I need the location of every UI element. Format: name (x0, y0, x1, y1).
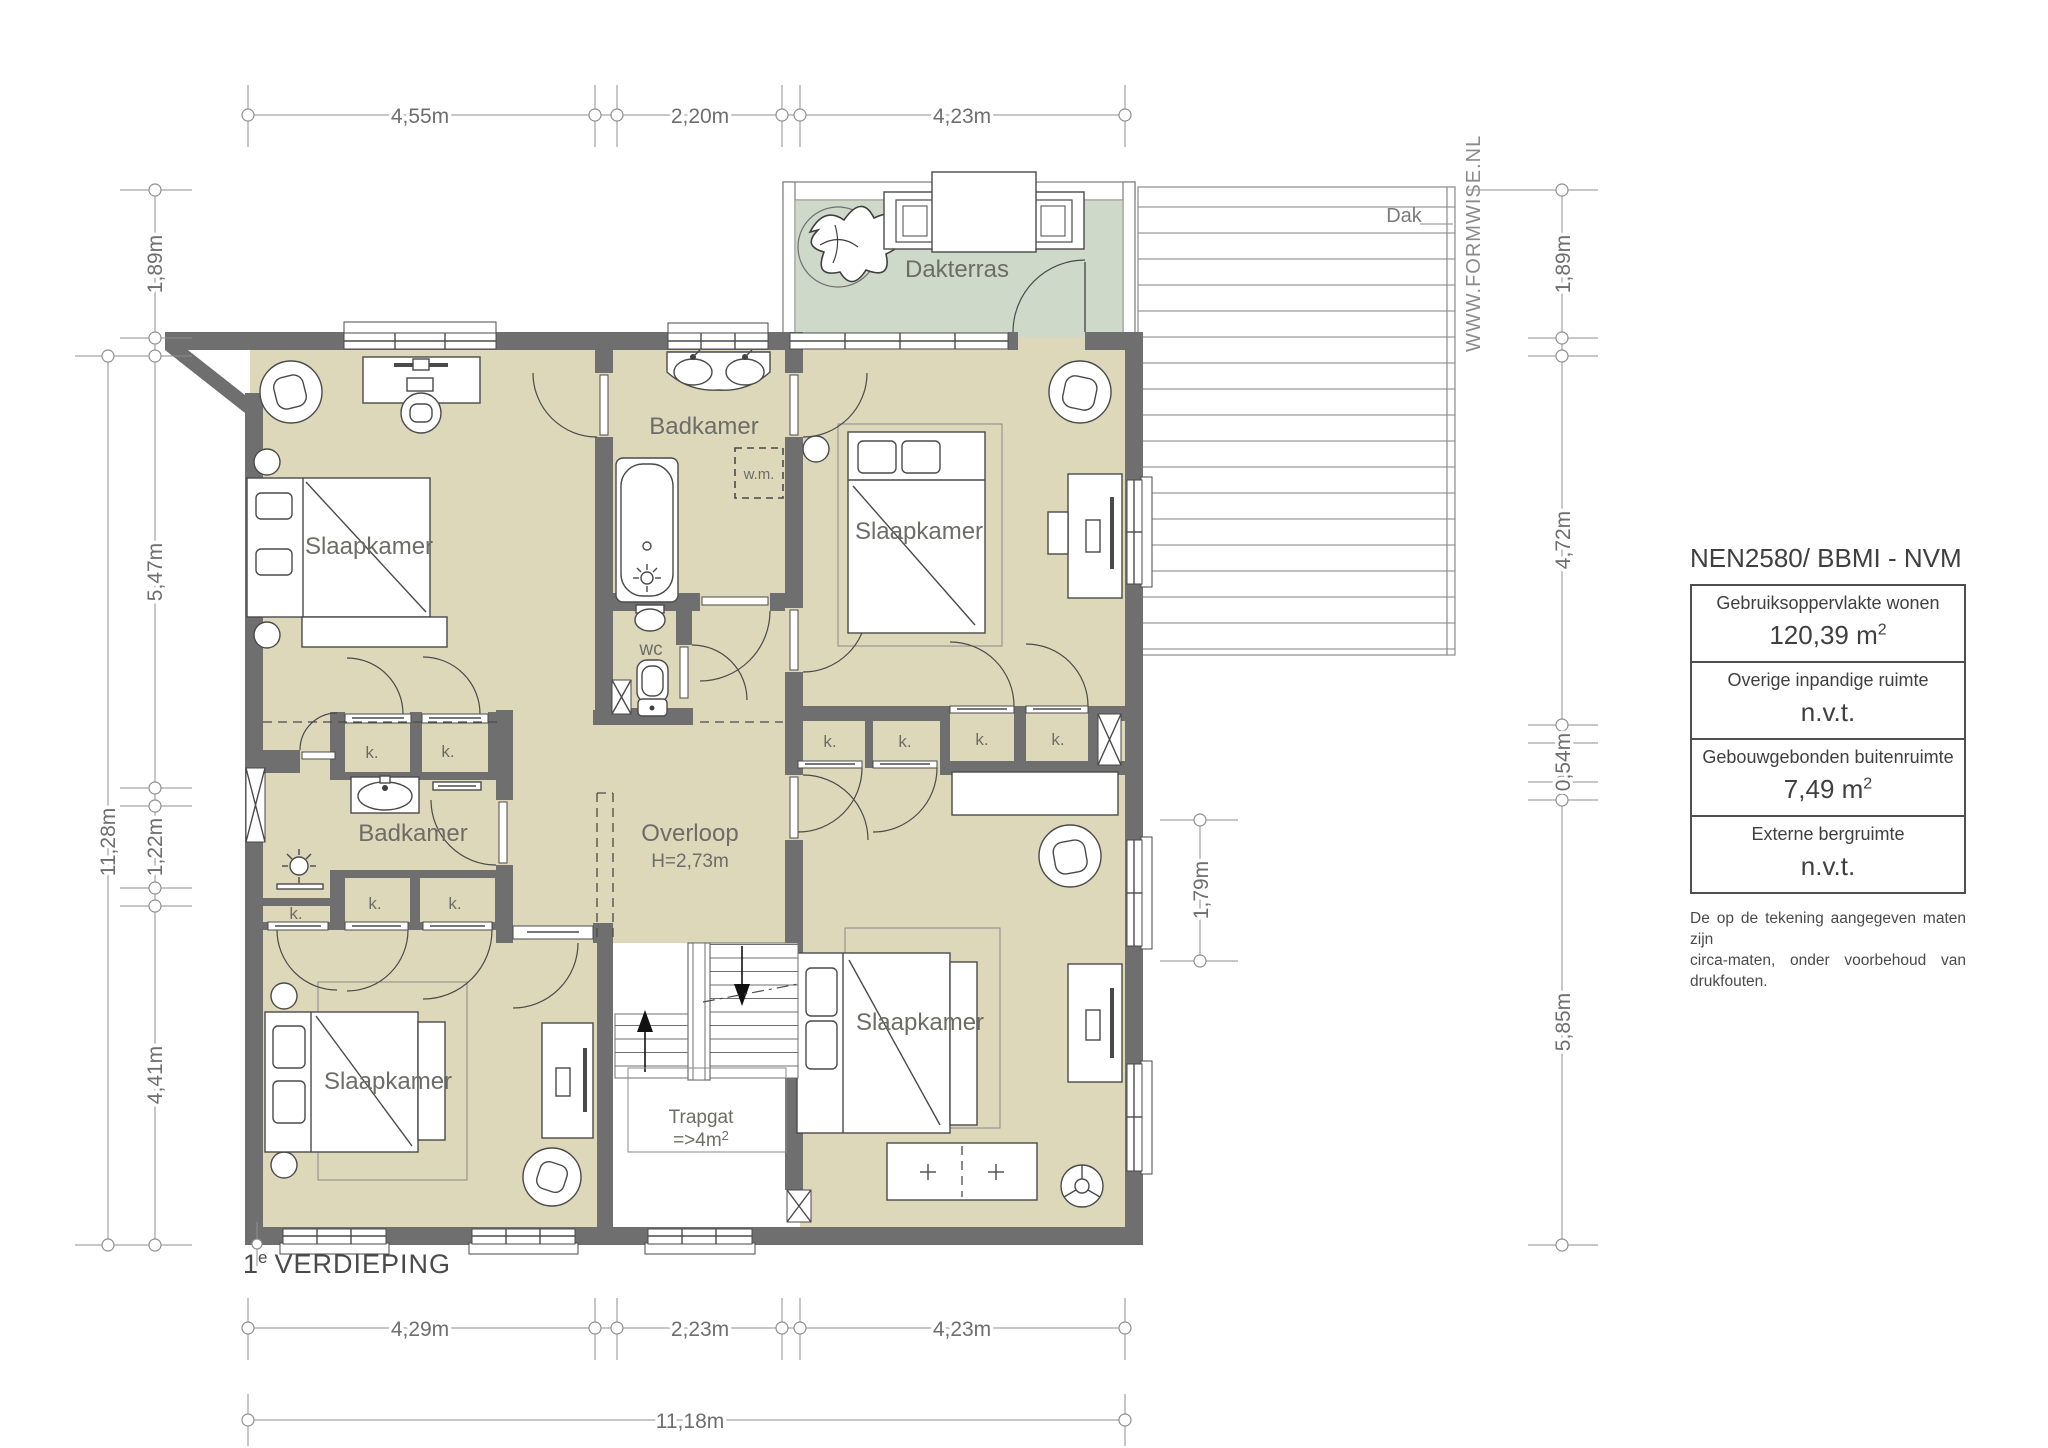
room-label-bedroom-bl: Slaapkamer (324, 1068, 452, 1095)
closet-label: k. (1051, 730, 1064, 749)
dim-bottom-2: 2,23m (671, 1318, 729, 1341)
chair (1039, 825, 1101, 887)
shaft (612, 680, 631, 714)
desk (1068, 964, 1122, 1082)
room-label-bedroom-tr: Slaapkamer (855, 518, 983, 545)
dim-left-2: 5,47m (144, 543, 167, 601)
stairwell-area-label: =>4m2 (673, 1128, 729, 1151)
room-label-bedroom-tl: Slaapkamer (305, 533, 433, 560)
dim-top-3: 4,23m (933, 105, 991, 128)
bed-bench (302, 617, 447, 647)
closet-label: k. (975, 730, 988, 749)
window (1127, 1061, 1152, 1174)
info-row-other-indoor: Overige inpandige ruimte n.v.t. (1692, 661, 1964, 738)
dim-left-1: 1,89m (144, 235, 167, 293)
bed-bench (950, 962, 977, 1125)
disclaimer: De op de tekening aangegeven maten zijn … (1690, 908, 1966, 992)
roof-terrace: Dakterras (783, 172, 1135, 345)
watermark-text: WWW.FORMWISE.NL (1463, 135, 1485, 352)
chair (1049, 361, 1111, 423)
window (645, 1229, 755, 1254)
side-table (254, 449, 280, 475)
closet-label: k. (365, 743, 378, 762)
room-label-bathroom-top: Badkamer (649, 413, 758, 440)
info-box-table: Gebruiksoppervlakte wonen 120,39 m2 Over… (1690, 584, 1966, 894)
dim-right-window: 1,79m (1190, 861, 1213, 919)
closet-label: k. (441, 742, 454, 761)
dim-left-total: 11,28m (97, 808, 120, 877)
roof-label: Dak (1386, 205, 1423, 227)
dim-right-3: 0,54m (1552, 733, 1575, 791)
wc-label: wc (638, 639, 662, 660)
side-table (803, 436, 829, 462)
side-table (271, 1152, 297, 1178)
room-label-bedroom-br: Slaapkamer (856, 1009, 984, 1036)
wardrobe (887, 1143, 1037, 1200)
window (469, 1229, 578, 1254)
room-label-landing: Overloop (641, 820, 738, 847)
dim-top-1: 4,55m (391, 105, 449, 128)
floor-title: 1eVERDIEPING (243, 1248, 451, 1280)
window (1127, 477, 1152, 587)
side-table (254, 622, 280, 648)
bathtub (616, 458, 678, 602)
info-box-title: NEN2580/ BBMI - NVM (1690, 543, 1966, 574)
dim-top-2: 2,20m (671, 105, 729, 128)
desk (542, 1023, 593, 1138)
bed (797, 953, 977, 1133)
dim-left-4: 4,41m (144, 1046, 167, 1104)
closet-label: k. (898, 732, 911, 751)
washing-machine-label: w.m. (743, 466, 775, 483)
dim-right-2: 4,72m (1552, 511, 1575, 569)
chair (523, 1148, 581, 1206)
side-table (271, 983, 297, 1009)
round-chair (1061, 1165, 1103, 1207)
stairwell-label: Trapgat (669, 1107, 734, 1128)
room-label-terrace: Dakterras (905, 256, 1009, 283)
landing-height-label: H=2,73m (651, 851, 729, 872)
window (668, 323, 768, 349)
closet-label: k. (289, 904, 302, 923)
dim-bottom-total: 11,18m (656, 1410, 725, 1433)
roof-area: Dak (1138, 187, 1455, 655)
area-info-box: NEN2580/ BBMI - NVM Gebruiksoppervlakte … (1690, 543, 1966, 992)
dim-right-4: 5,85m (1552, 993, 1575, 1051)
dim-left-3: 1,22m (144, 818, 167, 876)
dresser (952, 772, 1118, 815)
dim-bottom-1: 4,29m (391, 1318, 449, 1341)
room-label-bathroom-left: Badkamer (358, 820, 467, 847)
closet-label: k. (823, 732, 836, 751)
dim-bottom-3: 4,23m (933, 1318, 991, 1341)
dim-right-1: 1,89m (1552, 235, 1575, 293)
closet-label: k. (368, 894, 381, 913)
shaft (1098, 714, 1121, 765)
info-row-living-area: Gebruiksoppervlakte wonen 120,39 m2 (1692, 586, 1964, 661)
info-row-outdoor: Gebouwgebonden buitenruimte 7,49 m2 (1692, 738, 1964, 815)
terrace-window (790, 333, 1008, 349)
shaft (787, 1190, 811, 1222)
info-row-external-storage: Externe bergruimte n.v.t. (1692, 815, 1964, 892)
shaft (246, 768, 265, 842)
window (1127, 837, 1152, 949)
floorplan-page: Dak WWW.FORMWISE.NL Dakterras (0, 0, 2048, 1448)
armchair (260, 361, 322, 423)
window (344, 322, 496, 349)
closet-label: k. (448, 894, 461, 913)
